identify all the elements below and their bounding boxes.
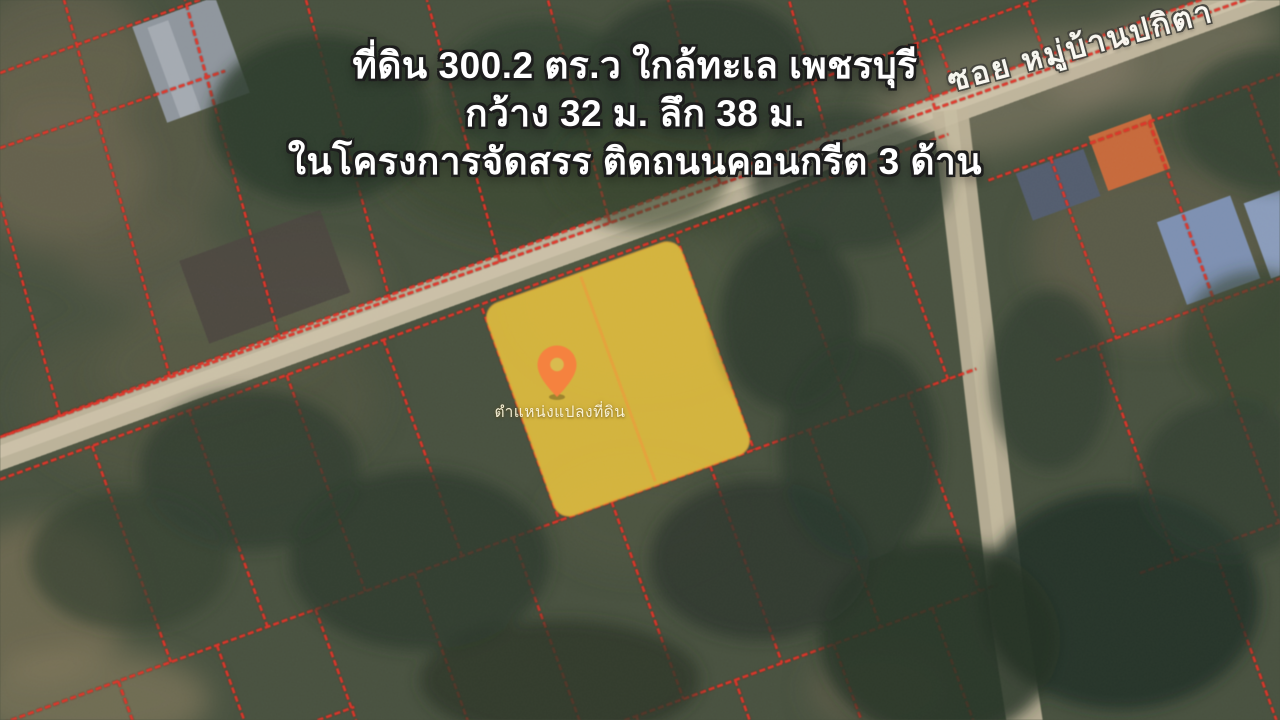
title-line-3: ในโครงการจัดสรร ติดถนนคอนกรีต 3 ด้าน [0,138,1270,186]
land-listing-image: ซอย หมู่บ้านปกิตา ที่ดิน 300.2 ตร.ว ใกล้… [0,0,1280,720]
listing-title-overlay: ที่ดิน 300.2 ตร.ว ใกล้ทะเล เพชรบุรี กว้า… [0,42,1270,186]
title-line-1: ที่ดิน 300.2 ตร.ว ใกล้ทะเล เพชรบุรี [0,42,1270,90]
plot-position-label: ตำแหน่งแปลงที่ดิน [478,399,642,424]
title-line-2: กว้าง 32 ม. ลึก 38 ม. [0,90,1270,138]
